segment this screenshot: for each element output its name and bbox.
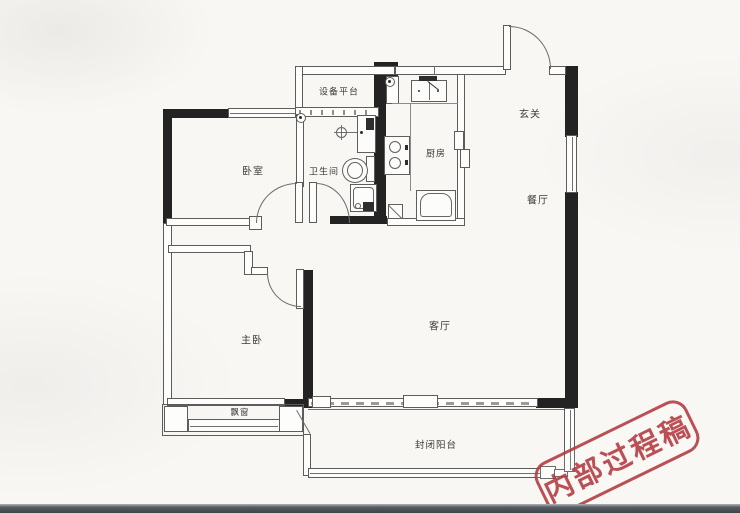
draft-stamp-text: 内部过程稿 bbox=[536, 403, 698, 511]
kitchen-counter-side bbox=[410, 104, 411, 191]
equipment-platform-top-wall bbox=[295, 66, 395, 75]
fridge-inner-outline bbox=[420, 193, 452, 217]
bedroom-master-divider-wall bbox=[168, 245, 251, 253]
toilet-bowl-inner bbox=[347, 162, 363, 179]
shear-wall-master-right bbox=[303, 270, 313, 407]
bay-window-left-pillar bbox=[164, 406, 188, 432]
stove-knob-2 bbox=[405, 160, 408, 165]
shear-wall-right-upper bbox=[565, 66, 578, 137]
entry-top-wall-stub bbox=[549, 66, 566, 75]
room-label-bedroom: 卧室 bbox=[242, 163, 264, 178]
kitchen-sliding-door-panel-1 bbox=[454, 131, 464, 150]
kitchen-sink-drain-right bbox=[437, 90, 439, 92]
bay-window-glazing bbox=[188, 419, 280, 432]
kitchen-sliding-door-panel-2 bbox=[460, 149, 470, 168]
shear-wall-bottom-right bbox=[536, 398, 578, 408]
living-window-panel-1 bbox=[312, 396, 331, 408]
living-window-panel-2 bbox=[403, 395, 438, 408]
bathroom-vanity-dot bbox=[360, 131, 363, 134]
entry-door-swing-arc bbox=[509, 26, 551, 69]
bedroom-window bbox=[228, 108, 298, 118]
floor-drain-kitchen-dot bbox=[388, 80, 391, 83]
shear-wall-right-lower bbox=[565, 192, 578, 408]
dining-window bbox=[566, 135, 577, 193]
kitchen-counter-front bbox=[392, 103, 458, 104]
floor-drain-bathroom-dot bbox=[299, 116, 302, 119]
shower-seat bbox=[363, 202, 374, 211]
room-label-entry-hall: 玄关 bbox=[519, 106, 541, 121]
kitchen-top-wall-tick bbox=[434, 66, 435, 75]
bay-window-right-pillar bbox=[279, 406, 303, 432]
stove-knob-1 bbox=[405, 145, 408, 150]
kitchen-sink-drain-left bbox=[418, 90, 420, 92]
room-label-bay-window: 飘窗 bbox=[230, 406, 249, 418]
balcony-bottom-window bbox=[308, 468, 544, 478]
equipment-platform-left-wall bbox=[295, 66, 303, 112]
room-label-kitchen: 厨房 bbox=[426, 147, 446, 160]
bathroom-vanity-tap bbox=[366, 118, 374, 130]
master-top-wall-stub bbox=[251, 267, 268, 275]
stove-burner-top bbox=[389, 141, 401, 153]
shear-wall-bedroom-top bbox=[163, 109, 231, 118]
room-label-dining-room: 餐厅 bbox=[527, 192, 549, 207]
faucet-valve-cross-v bbox=[341, 125, 342, 140]
room-label-bathroom: 卫生间 bbox=[309, 165, 339, 178]
photo-bottom-edge bbox=[0, 504, 740, 513]
balcony-top-line bbox=[308, 409, 566, 410]
shear-wall-bedroom-left bbox=[163, 109, 172, 224]
faucet-arm bbox=[347, 132, 357, 133]
room-label-master-bedroom: 主卧 bbox=[241, 332, 263, 347]
stove-burner-bottom bbox=[389, 157, 401, 169]
bedroom-door-swing-arc bbox=[256, 183, 297, 223]
shower-drain bbox=[355, 203, 361, 209]
draft-stamp: 内部过程稿 bbox=[529, 395, 705, 513]
room-label-living-room: 客厅 bbox=[429, 318, 451, 333]
room-label-enclosed-balcony: 封闭阳台 bbox=[415, 437, 457, 451]
bathroom-door-swing-arc bbox=[316, 183, 350, 223]
bathroom-left-wall bbox=[296, 114, 304, 187]
kitchen-top-wall bbox=[395, 66, 506, 75]
room-label-equipment-platform: 设备平台 bbox=[319, 85, 359, 98]
bedroom-bottom-wall bbox=[166, 218, 252, 226]
master-door-swing-arc bbox=[267, 273, 301, 307]
floor-plan-canvas: 设备平台 玄关 卧室 卫生间 厨房 餐厅 主卧 客厅 飘窗 封闭阳台 内部过程稿 bbox=[0, 0, 740, 513]
